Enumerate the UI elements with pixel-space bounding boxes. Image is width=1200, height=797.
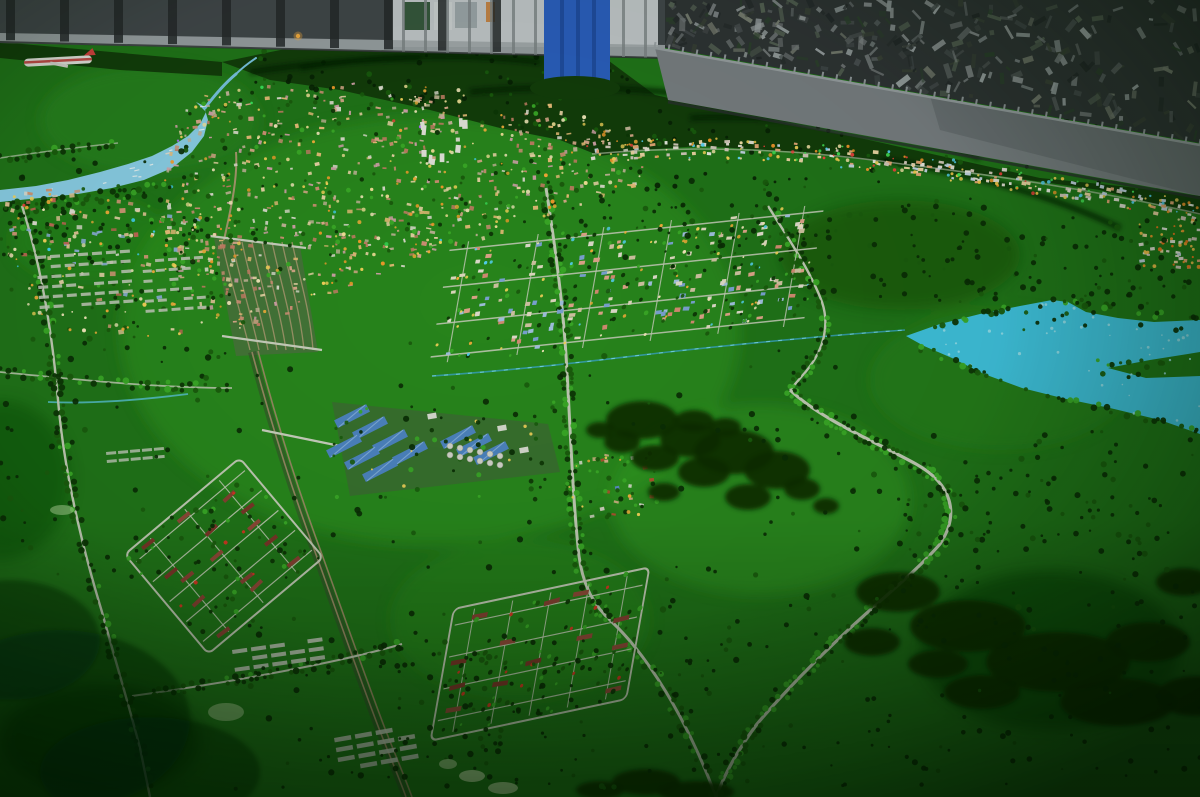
city-model-photograph bbox=[0, 0, 1200, 797]
photo-vignette bbox=[0, 0, 1200, 797]
photo-city-scale-model bbox=[0, 0, 1200, 797]
